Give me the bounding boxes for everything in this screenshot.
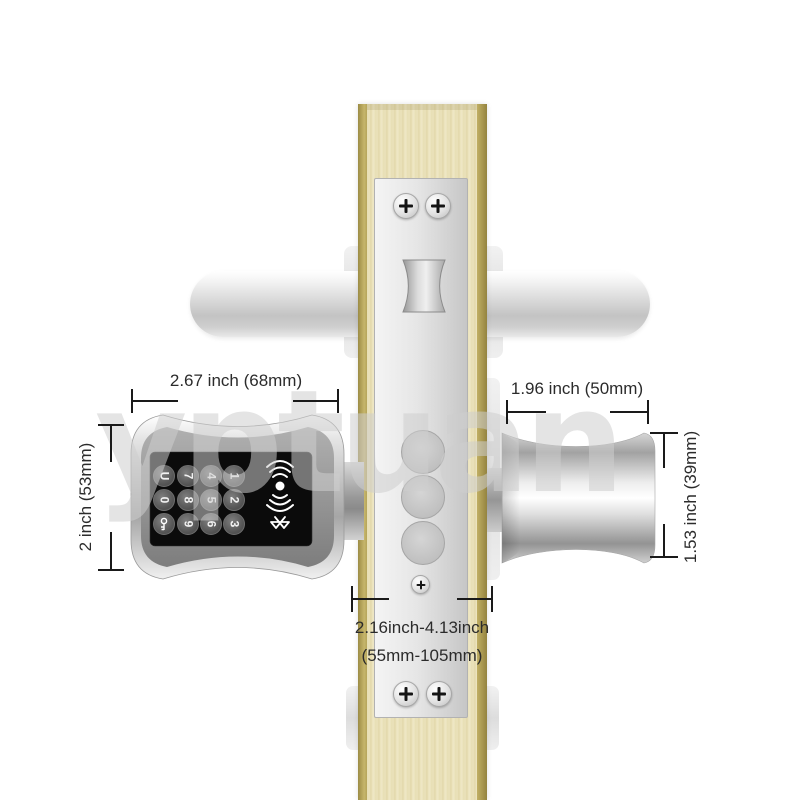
keypad-button-glyph: 2	[228, 497, 240, 504]
cylinder-hole-3	[401, 521, 445, 565]
keypad-button-5: 5	[200, 489, 222, 511]
backplate-edge	[486, 686, 499, 750]
knob-left-shade	[502, 433, 520, 563]
dimension-door-range-line2: (55mm-105mm)	[362, 646, 483, 666]
key-icon	[157, 517, 171, 531]
dimension-line	[133, 400, 178, 402]
cylinder-hole-1	[401, 430, 445, 474]
cylinder-hole-2	[401, 475, 445, 519]
keypad-key-button	[153, 513, 175, 535]
keypad-button-glyph: 8	[182, 497, 194, 504]
screw-bottom-left	[393, 681, 419, 707]
keypad-button-U: U	[153, 465, 175, 487]
keypad-button-9: 9	[177, 513, 199, 535]
dimension-keypad-width: 2.67 inch (68mm)	[170, 371, 302, 391]
keypad-button-glyph: 4	[205, 473, 217, 480]
dimension-knob-width: 1.96 inch (50mm)	[511, 379, 643, 399]
dimension-tick	[647, 400, 649, 424]
keypad-button-glyph: 0	[158, 497, 170, 504]
dimension-keypad-height: 2 inch (53mm)	[76, 443, 96, 552]
latch-bolt	[401, 259, 447, 313]
keypad-button-6: 6	[200, 513, 222, 535]
keypad-button-1: 1	[223, 465, 245, 487]
product-photo: U7410852963 yptuan 2.67 inch (68mm) 2 in…	[0, 0, 800, 800]
keypad-button-glyph: 6	[205, 521, 217, 528]
keypad-button-7: 7	[177, 465, 199, 487]
door-edge-top-shadow	[358, 104, 487, 110]
dimension-tick	[98, 569, 124, 571]
screw-top-right	[425, 193, 451, 219]
dimension-line	[508, 411, 546, 413]
keypad-button-8: 8	[177, 489, 199, 511]
dimension-line	[110, 426, 112, 462]
keypad-button-glyph: 3	[228, 521, 240, 528]
dimension-line	[353, 598, 389, 600]
screw-bottom-right	[426, 681, 452, 707]
dimension-tick	[650, 556, 678, 558]
keypad-button-3: 3	[223, 513, 245, 535]
dimension-tick	[337, 389, 339, 413]
dimension-line	[610, 411, 647, 413]
dimension-line	[110, 532, 112, 569]
dimension-knob-height: 1.53 inch (39mm)	[681, 431, 701, 563]
keypad-button-2: 2	[223, 489, 245, 511]
door-edge	[358, 104, 487, 800]
keypad-button-glyph: 9	[182, 521, 194, 528]
door-edge-gold-band	[477, 104, 487, 800]
dimension-door-range-line1: 2.16inch-4.13inch	[355, 618, 489, 638]
dimension-line	[663, 434, 665, 468]
dimension-line	[457, 598, 493, 600]
screw-top-left	[393, 193, 419, 219]
keypad-button-glyph: 7	[182, 473, 194, 480]
door-edge-gold-band	[358, 104, 367, 800]
keypad-button-4: 4	[200, 465, 222, 487]
interior-knob	[494, 425, 660, 571]
dimension-line	[663, 524, 665, 556]
keypad-button-glyph: 5	[205, 497, 217, 504]
keypad-button-glyph: U	[158, 472, 170, 481]
keypad-button-0: 0	[153, 489, 175, 511]
keypad-button-glyph: 1	[228, 473, 240, 480]
knob-body	[502, 433, 655, 563]
screw-middle	[411, 575, 430, 594]
dimension-line	[293, 400, 337, 402]
